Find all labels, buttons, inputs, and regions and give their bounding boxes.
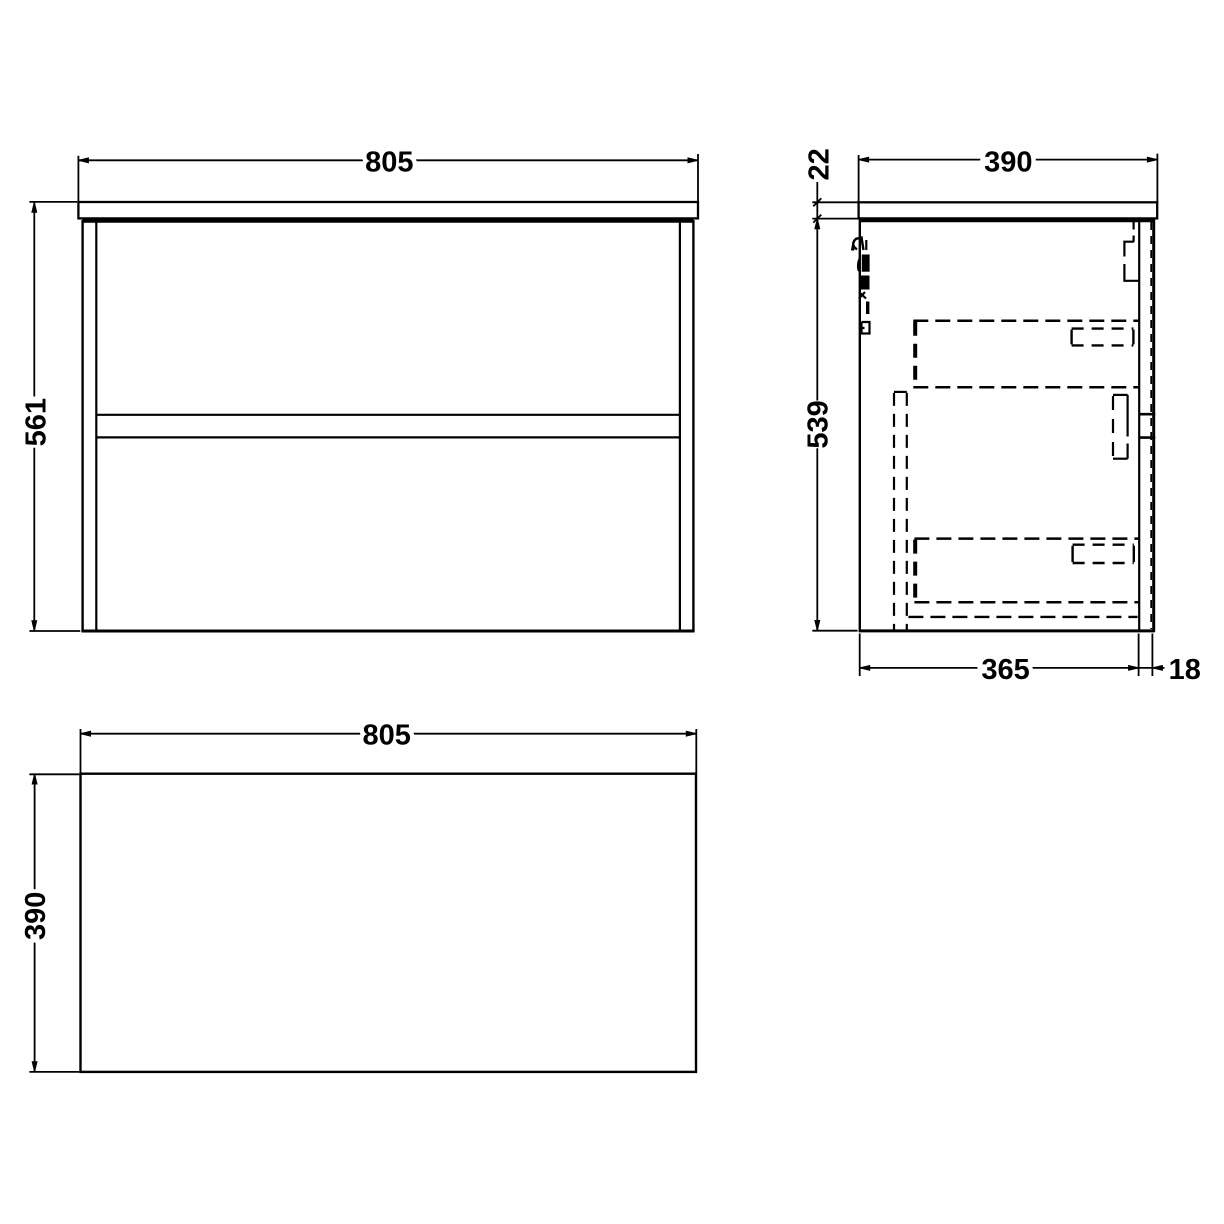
svg-text:805: 805: [365, 146, 413, 178]
svg-text:539: 539: [803, 400, 835, 448]
svg-text:390: 390: [984, 147, 1032, 179]
svg-text:365: 365: [981, 654, 1029, 686]
svg-text:805: 805: [363, 720, 411, 752]
svg-text:390: 390: [20, 892, 52, 940]
svg-text:22: 22: [803, 148, 835, 180]
svg-text:18: 18: [1169, 654, 1201, 686]
svg-text:561: 561: [20, 398, 52, 446]
